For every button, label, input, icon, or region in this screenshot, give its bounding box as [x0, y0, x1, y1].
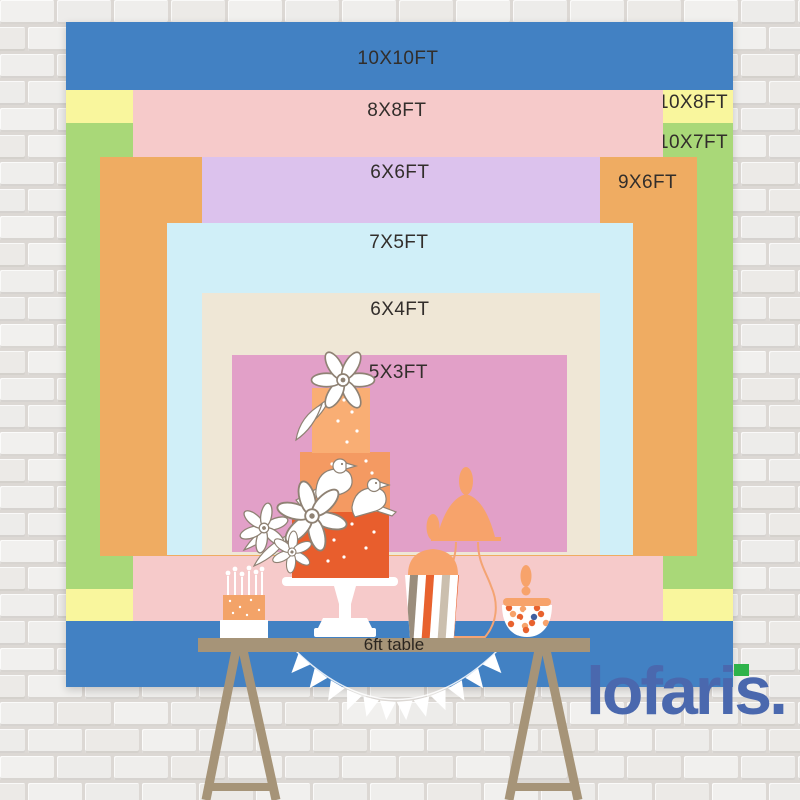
brick: [0, 297, 25, 321]
brick: [769, 27, 800, 51]
brick: [399, 0, 453, 24]
brick: [0, 594, 54, 618]
brick: [655, 729, 709, 753]
brick: [456, 0, 510, 24]
brick: [0, 27, 25, 51]
brick: [171, 756, 225, 780]
size-label-10x8: 10X8FT: [658, 93, 728, 112]
lofaris-wordmark: lofaris.: [586, 653, 785, 729]
brick: [570, 0, 624, 24]
brick: [769, 297, 800, 321]
brick: [342, 756, 396, 780]
brick: [256, 783, 310, 800]
brick: [769, 189, 800, 213]
brick: [0, 54, 54, 78]
brick: [741, 378, 795, 402]
brick: [627, 756, 681, 780]
brick: [0, 756, 54, 780]
brick: [741, 162, 795, 186]
brick: [0, 0, 54, 24]
brick: [399, 756, 453, 780]
brick: [199, 783, 253, 800]
brick: [627, 0, 681, 24]
brick: [741, 432, 795, 456]
brick: [28, 729, 82, 753]
brick: [342, 702, 396, 726]
brick: [741, 54, 795, 78]
brick: [712, 783, 766, 800]
size-label-6x4: 6X4FT: [370, 300, 429, 319]
brick: [285, 756, 339, 780]
brick: [741, 486, 795, 510]
brick: [0, 324, 54, 348]
brick: [85, 729, 139, 753]
brick: [741, 0, 795, 24]
brick: [171, 702, 225, 726]
brick: [769, 729, 800, 753]
brick: [399, 702, 453, 726]
brick: [0, 405, 25, 429]
brick: [142, 729, 196, 753]
brick: [741, 594, 795, 618]
brick: [769, 459, 800, 483]
brick: [741, 216, 795, 240]
brick: [57, 0, 111, 24]
brick: [0, 621, 25, 645]
brick: [769, 783, 800, 800]
brick: [256, 729, 310, 753]
brick: [484, 783, 538, 800]
brick: [541, 729, 595, 753]
brick: [0, 648, 54, 672]
brick: [769, 621, 800, 645]
brick: [0, 783, 25, 800]
brick: [0, 675, 25, 699]
brick: [114, 0, 168, 24]
brick: [0, 108, 54, 132]
brick: [0, 540, 54, 564]
brick: [655, 783, 709, 800]
brick: [513, 0, 567, 24]
brick: [427, 729, 481, 753]
brick: [85, 783, 139, 800]
brick: [741, 540, 795, 564]
brick: [0, 729, 25, 753]
brick: [484, 729, 538, 753]
brick: [313, 729, 367, 753]
brick: [0, 702, 54, 726]
brick: [769, 351, 800, 375]
brick: [0, 216, 54, 240]
brick: [342, 0, 396, 24]
brick: [598, 729, 652, 753]
brick: [456, 702, 510, 726]
table-top: 6ft table: [198, 638, 590, 652]
brick: [513, 702, 567, 726]
brick: [0, 135, 25, 159]
brick: [0, 459, 25, 483]
brick: [769, 405, 800, 429]
brick: [513, 756, 567, 780]
brick: [370, 783, 424, 800]
brick: [769, 513, 800, 537]
brick: [0, 486, 54, 510]
size-label-6x6: 6X6FT: [370, 163, 429, 182]
size-label-10x10: 10X10FT: [357, 49, 438, 68]
size-label-8x8: 8X8FT: [367, 101, 426, 120]
brick: [313, 783, 367, 800]
brick: [598, 783, 652, 800]
brick: [684, 0, 738, 24]
brick: [769, 567, 800, 591]
brick: [114, 702, 168, 726]
brick: [114, 756, 168, 780]
brick: [142, 783, 196, 800]
brick: [171, 0, 225, 24]
size-label-10x7: 10X7FT: [658, 133, 728, 152]
brick: [199, 729, 253, 753]
brick: [712, 729, 766, 753]
brick: [541, 783, 595, 800]
brick: [285, 702, 339, 726]
brick: [228, 756, 282, 780]
brick: [0, 243, 25, 267]
brick: [0, 189, 25, 213]
brick: [0, 81, 25, 105]
size-label-7x5: 7X5FT: [369, 233, 428, 252]
table-size-label: 6ft table: [364, 638, 425, 652]
brick: [456, 756, 510, 780]
brick: [741, 756, 795, 780]
brick: [228, 702, 282, 726]
brick: [28, 783, 82, 800]
brick: [57, 756, 111, 780]
brick: [0, 567, 25, 591]
brick: [741, 108, 795, 132]
brick: [769, 135, 800, 159]
brick: [370, 729, 424, 753]
size-label-5x3: 5X3FT: [369, 363, 428, 382]
brick: [0, 162, 54, 186]
size-label-9x6: 9X6FT: [618, 173, 677, 192]
brick: [228, 0, 282, 24]
brick: [769, 81, 800, 105]
brick: [0, 270, 54, 294]
backdrop-layer-5x3: 5X3FT: [232, 355, 567, 552]
brick: [570, 756, 624, 780]
brick: [0, 378, 54, 402]
brick: [427, 783, 481, 800]
brick: [684, 756, 738, 780]
brick: [0, 351, 25, 375]
brick: [0, 432, 54, 456]
brick: [741, 324, 795, 348]
logo-green-badge-icon: [734, 664, 749, 676]
brick: [0, 513, 25, 537]
brick: [57, 702, 111, 726]
brick: [741, 270, 795, 294]
backdrop-size-chart: 10X10FT 10X8FT 10X7FT 8X8FT 9X6FT 6X6FT …: [0, 0, 800, 800]
logo-period: .: [769, 653, 785, 729]
lofaris-logo: lofaris.: [586, 656, 785, 726]
brick: [769, 243, 800, 267]
brick: [285, 0, 339, 24]
